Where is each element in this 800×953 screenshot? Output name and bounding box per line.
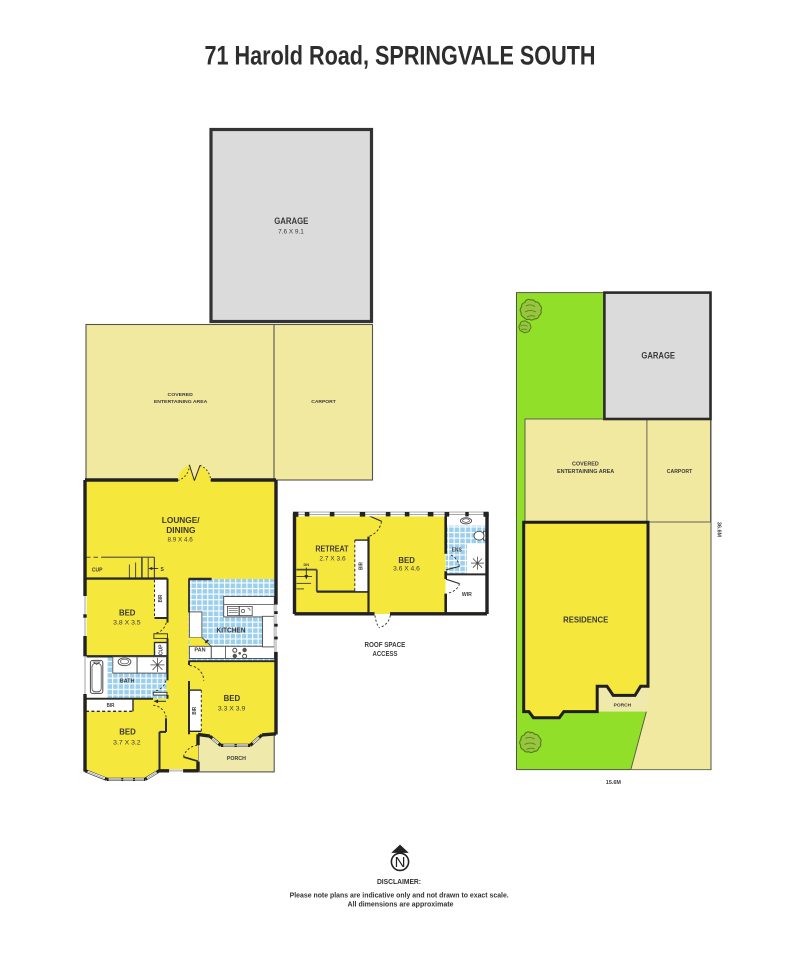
svg-text:36.6M: 36.6M — [716, 522, 722, 537]
svg-text:DN: DN — [304, 563, 310, 567]
svg-text:DISCLAIMER:: DISCLAIMER: — [377, 877, 421, 886]
svg-text:PAN: PAN — [194, 648, 206, 654]
svg-text:ENTERTAINING AREA: ENTERTAINING AREA — [557, 469, 615, 475]
svg-text:2.7 X 3.6: 2.7 X 3.6 — [319, 556, 346, 563]
svg-text:WIR: WIR — [462, 592, 472, 598]
svg-text:3.8 X 3.5: 3.8 X 3.5 — [113, 620, 141, 627]
svg-text:BATH: BATH — [120, 679, 135, 685]
svg-text:All dimensions are approximate: All dimensions are approximate — [348, 900, 454, 909]
svg-text:RESIDENCE: RESIDENCE — [563, 615, 608, 625]
svg-text:COVERED: COVERED — [168, 392, 194, 398]
svg-text:KITCHEN: KITCHEN — [217, 625, 246, 634]
svg-text:Please note plans are indicati: Please note plans are indicative only an… — [290, 891, 509, 900]
svg-text:71 Harold Road, SPRINGVALE SOU: 71 Harold Road, SPRINGVALE SOUTH — [205, 41, 596, 71]
svg-text:CARPORT: CARPORT — [667, 469, 693, 475]
svg-text:BED: BED — [119, 726, 136, 736]
svg-text:15.6M: 15.6M — [606, 780, 621, 786]
svg-text:GARAGE: GARAGE — [641, 351, 675, 361]
svg-text:3.6 X 4.6: 3.6 X 4.6 — [393, 566, 420, 573]
svg-text:3.3 X 3.9: 3.3 X 3.9 — [218, 705, 246, 712]
svg-text:ENS: ENS — [452, 547, 463, 553]
svg-text:GARAGE: GARAGE — [274, 216, 308, 226]
svg-text:ROOF SPACE: ROOF SPACE — [364, 642, 405, 649]
svg-text:3.7 X 3.2: 3.7 X 3.2 — [113, 739, 141, 746]
svg-text:COVERED: COVERED — [572, 462, 599, 468]
svg-text:PORCH: PORCH — [614, 703, 632, 709]
svg-text:BED: BED — [224, 693, 241, 703]
svg-text:BED: BED — [119, 607, 136, 617]
svg-text:CUP: CUP — [92, 568, 103, 574]
svg-text:7.6 X 9.1: 7.6 X 9.1 — [278, 228, 304, 235]
svg-text:LOUNGE/: LOUNGE/ — [162, 515, 200, 525]
svg-text:ENTERTAINING AREA: ENTERTAINING AREA — [154, 399, 208, 405]
svg-text:BIR: BIR — [192, 706, 198, 714]
svg-text:RETREAT: RETREAT — [315, 544, 349, 554]
svg-text:ACCESS: ACCESS — [373, 651, 398, 658]
svg-text:BIR: BIR — [158, 594, 164, 602]
svg-text:CARPORT: CARPORT — [311, 399, 336, 405]
svg-text:DINING: DINING — [166, 525, 196, 535]
svg-text:BED: BED — [398, 555, 415, 565]
svg-text:PORCH: PORCH — [227, 756, 246, 762]
svg-text:BIR: BIR — [358, 562, 364, 570]
svg-text:BIR: BIR — [107, 703, 115, 709]
svg-text:CUP: CUP — [158, 644, 164, 655]
svg-text:8.9 X 4.6: 8.9 X 4.6 — [168, 537, 194, 544]
svg-text:N: N — [395, 854, 406, 871]
